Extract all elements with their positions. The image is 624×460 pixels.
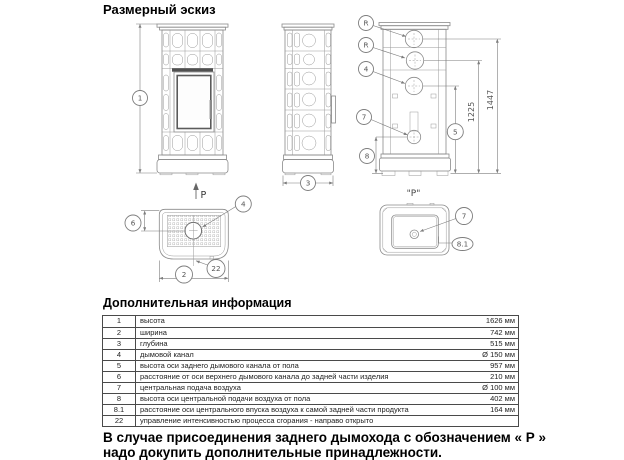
balloon-air-offset: 8.1 [439, 237, 474, 251]
rear-flue-arrow-label: P [201, 190, 207, 201]
side-tile-grid [285, 30, 331, 155]
row-number: 8 [103, 394, 136, 404]
table-row: 6расстояние от оси верхнего дымового кан… [103, 371, 518, 382]
row-value: Ø 100 мм [482, 383, 518, 393]
rear-flue-note-line1: В случае присоединения заднего дымохода … [103, 430, 603, 445]
svg-text:8.1: 8.1 [457, 239, 468, 248]
row-number: 1 [103, 316, 136, 327]
rear-flue-note: В случае присоединения заднего дымохода … [103, 430, 603, 460]
balloon-height: 1 [133, 91, 148, 106]
table-row: 22управление интенсивностью процесса сго… [103, 415, 518, 426]
svg-text:7: 7 [362, 113, 367, 122]
svg-text:5: 5 [453, 127, 458, 136]
row-description: расстояние оси центрального впуска возду… [136, 405, 490, 415]
svg-text:R: R [364, 41, 369, 50]
side-base [283, 155, 334, 175]
dim-depth: 3 [283, 176, 333, 191]
balloon-control: 22 [196, 256, 225, 277]
svg-text:6: 6 [131, 219, 136, 228]
row-description: расстояние от оси верхнего дымового кана… [136, 372, 490, 382]
row-description: управление интенсивностью процесса сгора… [136, 416, 515, 426]
table-row: 3глубина515 мм [103, 338, 518, 349]
dimensional-sketch: 1 P [100, 10, 520, 290]
p-view-caption: "P" [407, 189, 421, 199]
svg-text:3: 3 [306, 179, 311, 188]
rear-flue-note-line2: надо докупить дополнительные принадлежно… [103, 445, 603, 460]
row-number: 5 [103, 361, 136, 371]
balloon-flue-offset: 6 [125, 215, 141, 231]
row-number: 8.1 [103, 405, 136, 415]
row-description: центральная подача воздуха [136, 383, 482, 393]
row-number: 7 [103, 383, 136, 393]
manual-page: Размерный эскиз [0, 0, 624, 460]
row-value: Ø 150 мм [482, 350, 518, 360]
dim-upper-outlet: 1447 [486, 39, 497, 173]
svg-text:4: 4 [241, 200, 246, 209]
svg-text:22: 22 [211, 264, 220, 273]
row-description: дымовой канал [136, 350, 482, 360]
row-description: высота [136, 316, 486, 327]
rear-flue-arrow: P [193, 183, 206, 202]
table-row: 2ширина742 мм [103, 327, 518, 338]
svg-text:R: R [364, 19, 369, 28]
side-view: 3 [282, 24, 336, 191]
door-handle [210, 100, 212, 119]
row-description: высота оси центральной подачи воздуха от… [136, 394, 490, 404]
row-value: 515 мм [490, 339, 518, 349]
p-view: "P" 7 8.1 [380, 189, 473, 255]
table-title: Дополнительная информация [103, 296, 292, 310]
balloon-width: 2 [176, 266, 193, 283]
vent-grille [172, 68, 213, 71]
row-value: 1626 мм [486, 316, 518, 327]
table-row: 4дымовой каналØ 150 мм [103, 349, 518, 360]
row-description: высота оси заднего дымового канала от по… [136, 361, 490, 371]
row-value: 164 мм [490, 405, 518, 415]
svg-text:1225: 1225 [467, 102, 476, 122]
flue-opening-top [185, 222, 202, 239]
balloon-flue-top: 4 [203, 196, 252, 227]
stove-door [174, 72, 214, 132]
balloon-flue-height: 5 [447, 124, 463, 140]
balloon-air-rear: 7 [357, 110, 408, 136]
air-inlet-bottom [410, 230, 419, 239]
row-description: ширина [136, 328, 490, 338]
svg-text:2: 2 [182, 270, 187, 279]
row-number: 2 [103, 328, 136, 338]
svg-text:1: 1 [138, 94, 143, 103]
svg-text:7: 7 [462, 212, 467, 221]
table-row: 7центральная подача воздухаØ 100 мм [103, 382, 518, 393]
row-value: 957 мм [490, 361, 518, 371]
rear-base [380, 154, 451, 176]
svg-text:8: 8 [365, 152, 370, 161]
rear-view: R R 4 7 8 [357, 16, 502, 176]
table-row: 8высота оси центральной подачи воздуха о… [103, 393, 518, 404]
top-view: 6 4 2 22 [125, 196, 251, 283]
row-description: глубина [136, 339, 490, 349]
balloon-depth: 3 [301, 176, 316, 191]
svg-text:4: 4 [364, 65, 369, 74]
row-number: 3 [103, 339, 136, 349]
balloon-r-lower: R [359, 38, 406, 59]
row-value [515, 416, 518, 426]
row-number: 4 [103, 350, 136, 360]
front-base [157, 155, 228, 175]
row-number: 22 [103, 416, 136, 426]
table-row: 8.1расстояние оси центрального впуска во… [103, 404, 518, 415]
row-value: 402 мм [490, 394, 518, 404]
dim-height: 1 [133, 24, 158, 173]
side-handle [331, 96, 336, 123]
row-value: 742 мм [490, 328, 518, 338]
row-number: 6 [103, 372, 136, 382]
front-view: 1 P [133, 24, 229, 201]
table-row: 5высота оси заднего дымового канала от п… [103, 360, 518, 371]
balloon-air-height: 8 [360, 149, 375, 164]
rear-details [393, 94, 437, 131]
dim-lower-outlet: 1225 [467, 61, 479, 174]
balloon-flue-rear: 4 [359, 62, 406, 84]
table-row: 1высота1626 мм [103, 316, 518, 327]
svg-text:1447: 1447 [486, 90, 495, 110]
info-table: 1высота1626 мм 2ширина742 мм 3глубина515… [102, 315, 519, 427]
row-value: 210 мм [490, 372, 518, 382]
